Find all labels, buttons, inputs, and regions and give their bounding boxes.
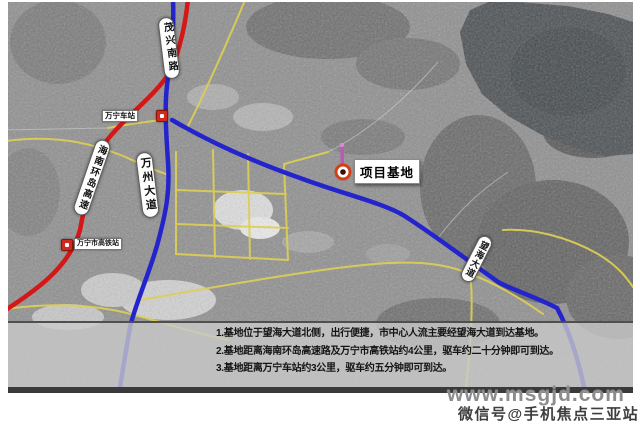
hsr-station-icon: [61, 239, 73, 251]
screenshot-root: 茂兴南路 海南环岛高速 万州大道 望海大道 万宁车站 万宁市高铁站 项目基地 1…: [0, 0, 640, 427]
project-base-label: 项目基地: [354, 159, 420, 184]
info-line-3: 3.基地距离万宁车站约3公里，驱车约五分钟即可到达。: [216, 362, 559, 375]
watermark-wechat-id: 微信号@手机焦点三亚站: [458, 403, 639, 424]
target-dot: [340, 169, 346, 175]
train-station-icon: [156, 110, 168, 122]
info-line-2: 2.基地距离海南环岛高速路及万宁市高铁站约4公里，驱车约二十分钟即可到达。: [216, 345, 559, 358]
info-line-1: 1.基地位于望海大道北侧，出行便捷，市中心人流主要经望海大道到达基地。: [216, 327, 559, 340]
pin-head: [340, 143, 344, 147]
station-label-wanning-station: 万宁车站: [102, 110, 138, 122]
station-label-wanning-hsr-station: 万宁市高铁站: [74, 238, 122, 250]
info-panel: 1.基地位于望海大道北侧，出行便捷，市中心人流主要经望海大道到达基地。 2.基地…: [216, 327, 559, 380]
